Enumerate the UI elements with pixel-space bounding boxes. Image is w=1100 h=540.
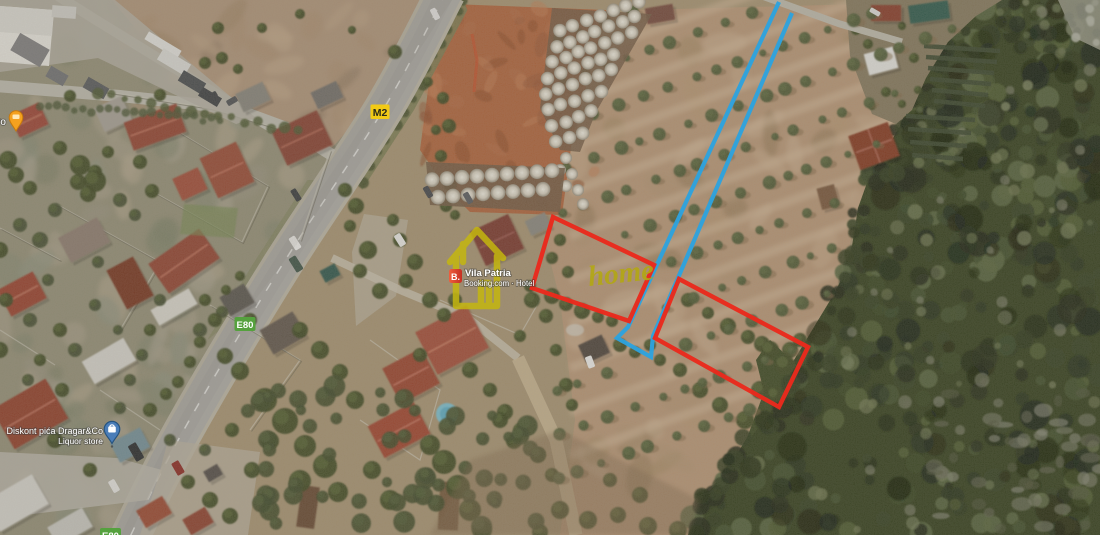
svg-text:Booking.com · Hotel: Booking.com · Hotel (464, 279, 534, 288)
svg-text:Diskont pića Dragar&Co: Diskont pića Dragar&Co (6, 426, 103, 436)
svg-text:Liquor store: Liquor store (58, 436, 103, 446)
svg-text:E80: E80 (102, 531, 119, 535)
svg-text:ro: ro (0, 117, 6, 128)
svg-text:M2: M2 (373, 107, 388, 119)
svg-text:B.: B. (451, 272, 460, 282)
svg-text:E80: E80 (237, 320, 254, 331)
svg-text:Vila Patria: Vila Patria (465, 268, 511, 279)
